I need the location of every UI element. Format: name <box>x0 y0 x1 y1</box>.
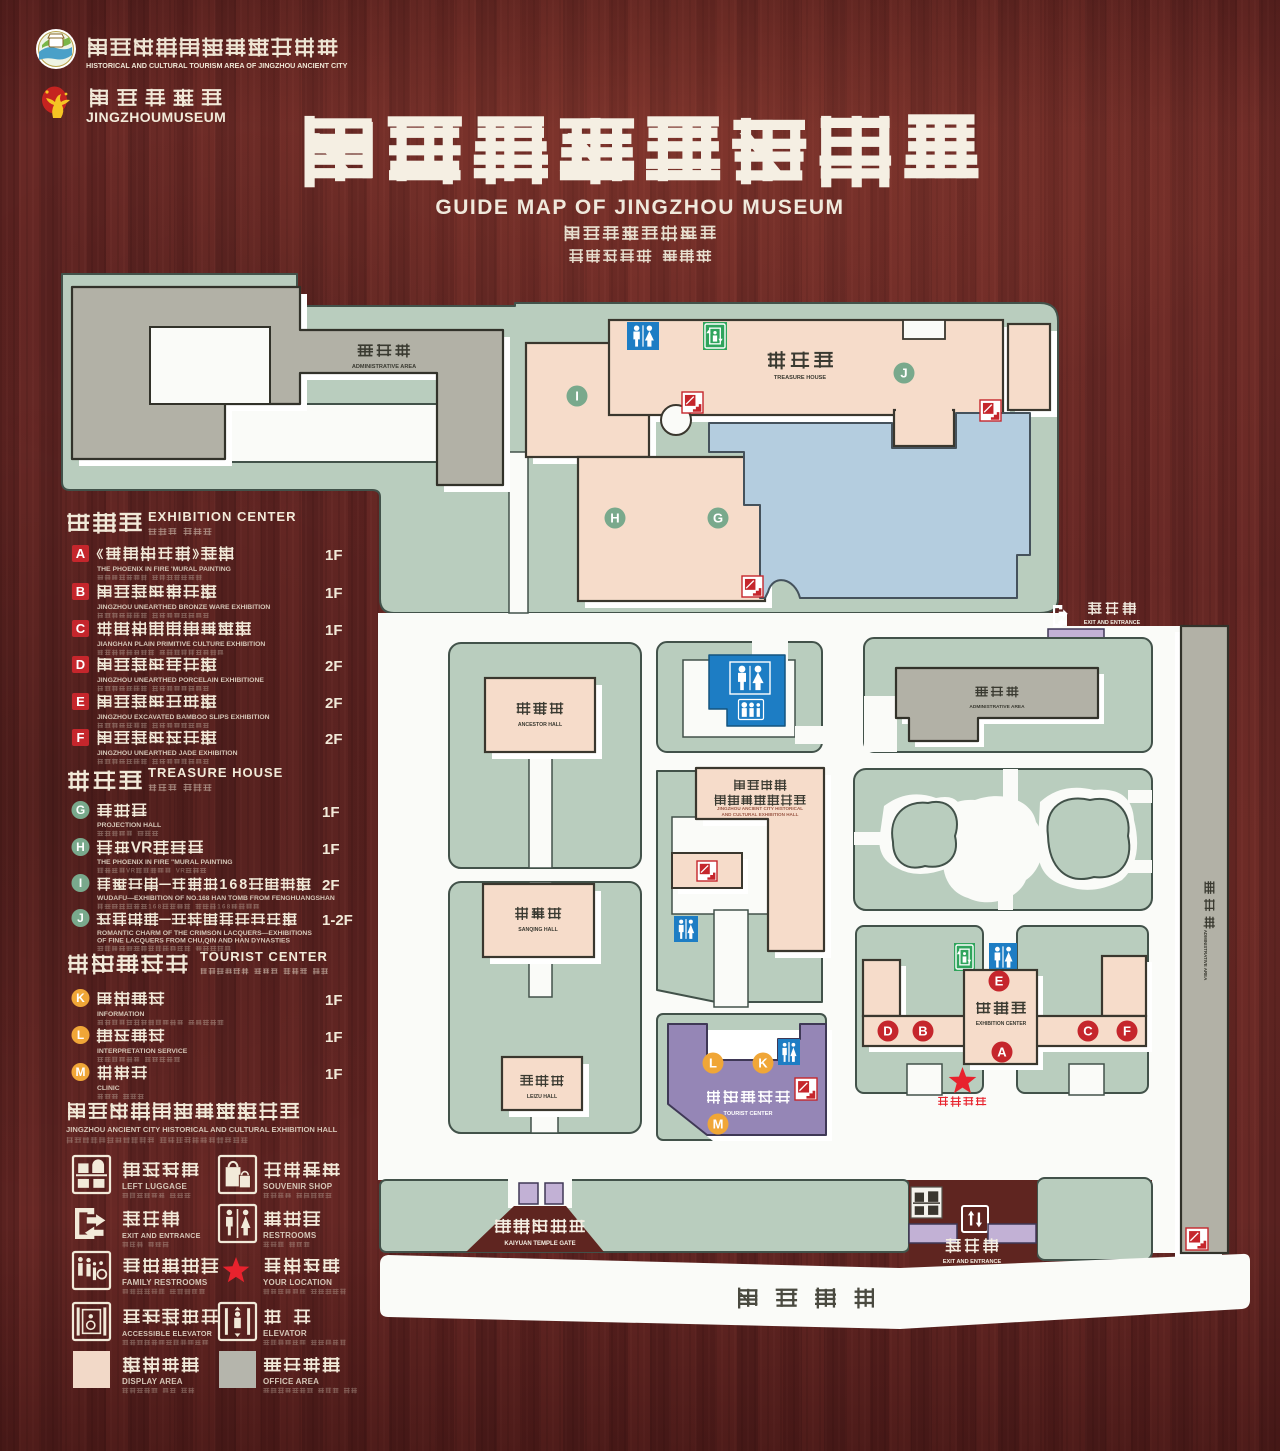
svg-text:I: I <box>575 389 579 404</box>
svg-text:J: J <box>77 911 84 925</box>
svg-text:1-2F: 1-2F <box>322 912 353 929</box>
svg-text:THE PHOENIX IN FIRE 'MURAL PAI: THE PHOENIX IN FIRE 'MURAL PAINTING <box>97 566 231 573</box>
svg-text:H: H <box>76 840 85 854</box>
svg-text:INFORMATION: INFORMATION <box>97 1011 145 1018</box>
svg-text:2F: 2F <box>322 877 340 894</box>
svg-text:JINGZHOU EXCAVATED BAMBOO SLIP: JINGZHOU EXCAVATED BAMBOO SLIPS EXHIBITI… <box>97 714 270 721</box>
svg-text:KAIYUAN TEMPLE GATE: KAIYUAN TEMPLE GATE <box>504 1241 575 1247</box>
svg-text:JIANGHAN PLAIN PRIMITIVE CULTU: JIANGHAN PLAIN PRIMITIVE CULTURE EXHIBIT… <box>97 641 265 648</box>
svg-text:ACCESSIBLE ELEVATOR: ACCESSIBLE ELEVATOR <box>122 1329 213 1338</box>
svg-text:1F: 1F <box>325 1029 343 1046</box>
svg-text:AND CULTURAL EXHIBITION HALL: AND CULTURAL EXHIBITION HALL <box>722 812 799 817</box>
svg-text:R: R <box>141 840 152 857</box>
svg-text:C: C <box>1083 1024 1093 1039</box>
svg-text:SANQING HALL: SANQING HALL <box>518 927 558 933</box>
svg-text:ELEVATOR: ELEVATOR <box>263 1329 307 1338</box>
svg-text:HISTORICAL AND CULTURAL TOURIS: HISTORICAL AND CULTURAL TOURISM AREA OF … <box>86 61 348 70</box>
svg-text:TREASURE HOUSE: TREASURE HOUSE <box>148 765 283 780</box>
svg-text:ADMINISTRATIVE AREA: ADMINISTRATIVE AREA <box>352 364 416 370</box>
svg-text:TOURIST CENTER: TOURIST CENTER <box>724 1111 773 1117</box>
svg-text:EXHIBITION CENTER: EXHIBITION CENTER <box>148 509 296 524</box>
svg-text:WUDAFU—EXHIBITION OF NO.168 HA: WUDAFU—EXHIBITION OF NO.168 HAN TOMB FRO… <box>97 895 335 902</box>
svg-text:C: C <box>76 621 86 636</box>
svg-text:JINGZHOU ANCIENT CITY HISTORIC: JINGZHOU ANCIENT CITY HISTORICAL <box>717 806 803 811</box>
svg-text:EXIT AND ENTRANCE: EXIT AND ENTRANCE <box>1084 620 1141 626</box>
svg-text:ADMINISTRATIVE AREA: ADMINISTRATIVE AREA <box>1203 930 1208 981</box>
svg-text:6: 6 <box>153 904 157 911</box>
svg-text:2F: 2F <box>325 695 343 712</box>
svg-text:OFFICE AREA: OFFICE AREA <box>263 1377 319 1386</box>
svg-text:K: K <box>758 1056 768 1071</box>
svg-text:K: K <box>76 991 85 1005</box>
svg-text:2F: 2F <box>325 658 343 675</box>
svg-text:RESTROOMS: RESTROOMS <box>263 1231 317 1240</box>
svg-text:LEIZU HALL: LEIZU HALL <box>527 1094 558 1100</box>
svg-text:A: A <box>997 1045 1007 1060</box>
svg-text:DISPLAY AREA: DISPLAY AREA <box>122 1377 183 1386</box>
svg-text:B: B <box>918 1024 927 1039</box>
svg-text:8: 8 <box>239 877 247 893</box>
svg-text:F: F <box>1123 1024 1131 1039</box>
svg-text:1F: 1F <box>325 547 343 564</box>
svg-text:D: D <box>883 1024 892 1039</box>
svg-text:H: H <box>610 511 619 526</box>
svg-text:TOURIST CENTER: TOURIST CENTER <box>200 949 328 964</box>
svg-text:FAMILY RESTROOMS: FAMILY RESTROOMS <box>122 1278 208 1287</box>
svg-text:F: F <box>77 730 85 745</box>
svg-text:8: 8 <box>158 904 162 911</box>
svg-text:G: G <box>76 803 85 817</box>
svg-text:G: G <box>713 511 723 526</box>
svg-text:ROMANTIC CHARM OF THE CRIMSON: ROMANTIC CHARM OF THE CRIMSON LACQUERS—E… <box>97 930 312 937</box>
svg-text:B: B <box>76 584 85 599</box>
svg-text:EXHIBITION CENTER: EXHIBITION CENTER <box>976 1021 1027 1027</box>
svg-text:YOUR LOCATION: YOUR LOCATION <box>263 1278 332 1287</box>
svg-text:8: 8 <box>227 904 231 911</box>
svg-text:CLINIC: CLINIC <box>97 1085 120 1092</box>
svg-text:ADMINISTRATIVE AREA: ADMINISTRATIVE AREA <box>969 704 1025 710</box>
svg-text:EXIT AND ENTRANCE: EXIT AND ENTRANCE <box>943 1259 1002 1265</box>
svg-text:EXIT AND ENTRANCE: EXIT AND ENTRANCE <box>122 1231 201 1240</box>
svg-text:2F: 2F <box>325 731 343 748</box>
svg-text:JINGZHOU UNEARTHED JADE EXHIBI: JINGZHOU UNEARTHED JADE EXHIBITION <box>97 750 238 757</box>
svg-text:INTERPRETATION SERVICE: INTERPRETATION SERVICE <box>97 1048 188 1055</box>
svg-text:1F: 1F <box>322 804 340 821</box>
svg-text:R: R <box>180 868 185 875</box>
svg-text:1F: 1F <box>325 622 343 639</box>
svg-text:1F: 1F <box>325 1066 343 1083</box>
svg-text:6: 6 <box>222 904 226 911</box>
svg-text:1F: 1F <box>325 585 343 602</box>
svg-text:E: E <box>76 694 85 709</box>
svg-text:D: D <box>76 657 85 672</box>
svg-text:1: 1 <box>217 904 221 911</box>
svg-text:PROJECTION HALL: PROJECTION HALL <box>97 822 161 829</box>
svg-text:JINGZHOU UNEARTHED BRONZE WARE: JINGZHOU UNEARTHED BRONZE WARE EXHIBITIO… <box>97 604 270 611</box>
svg-text:OF FINE LACQUERS FROM CHU,QIN: OF FINE LACQUERS FROM CHU,QIN AND HAN DY… <box>97 938 291 945</box>
svg-text:JINGZHOUMUSEUM: JINGZHOUMUSEUM <box>86 109 226 125</box>
svg-text:1: 1 <box>148 904 152 911</box>
svg-text:JINGZHOU UNEARTHED PORCELAIN E: JINGZHOU UNEARTHED PORCELAIN EXHIBITIONE <box>97 677 264 684</box>
svg-text:V: V <box>131 840 142 857</box>
svg-text:LEFT LUGGAGE: LEFT LUGGAGE <box>122 1182 188 1191</box>
svg-text:E: E <box>995 974 1004 989</box>
svg-text:THE PHOENIX IN FIRE "MURAL PAI: THE PHOENIX IN FIRE "MURAL PAINTING <box>97 859 233 866</box>
svg-text:SOUVENIR SHOP: SOUVENIR SHOP <box>263 1182 333 1191</box>
svg-text:1F: 1F <box>325 992 343 1009</box>
svg-text:A: A <box>76 546 86 561</box>
svg-text:L: L <box>77 1028 84 1042</box>
svg-text:JINGZHOU ANCIENT CITY HISTORIC: JINGZHOU ANCIENT CITY HISTORICAL AND CUL… <box>66 1125 338 1134</box>
svg-text:I: I <box>79 876 82 890</box>
svg-text:R: R <box>131 868 136 875</box>
svg-text:1F: 1F <box>322 841 340 858</box>
svg-text:M: M <box>713 1117 724 1132</box>
svg-text:6: 6 <box>229 877 237 893</box>
svg-text:L: L <box>709 1056 717 1071</box>
svg-text:ANCESTOR HALL: ANCESTOR HALL <box>518 722 563 728</box>
svg-text:J: J <box>900 366 907 381</box>
svg-text:1: 1 <box>219 877 227 893</box>
svg-text:TREASURE HOUSE: TREASURE HOUSE <box>774 375 826 381</box>
svg-text:GUIDE MAP OF JINGZHOU MUSEUM: GUIDE MAP OF JINGZHOU MUSEUM <box>435 196 844 219</box>
svg-text:M: M <box>76 1065 86 1079</box>
